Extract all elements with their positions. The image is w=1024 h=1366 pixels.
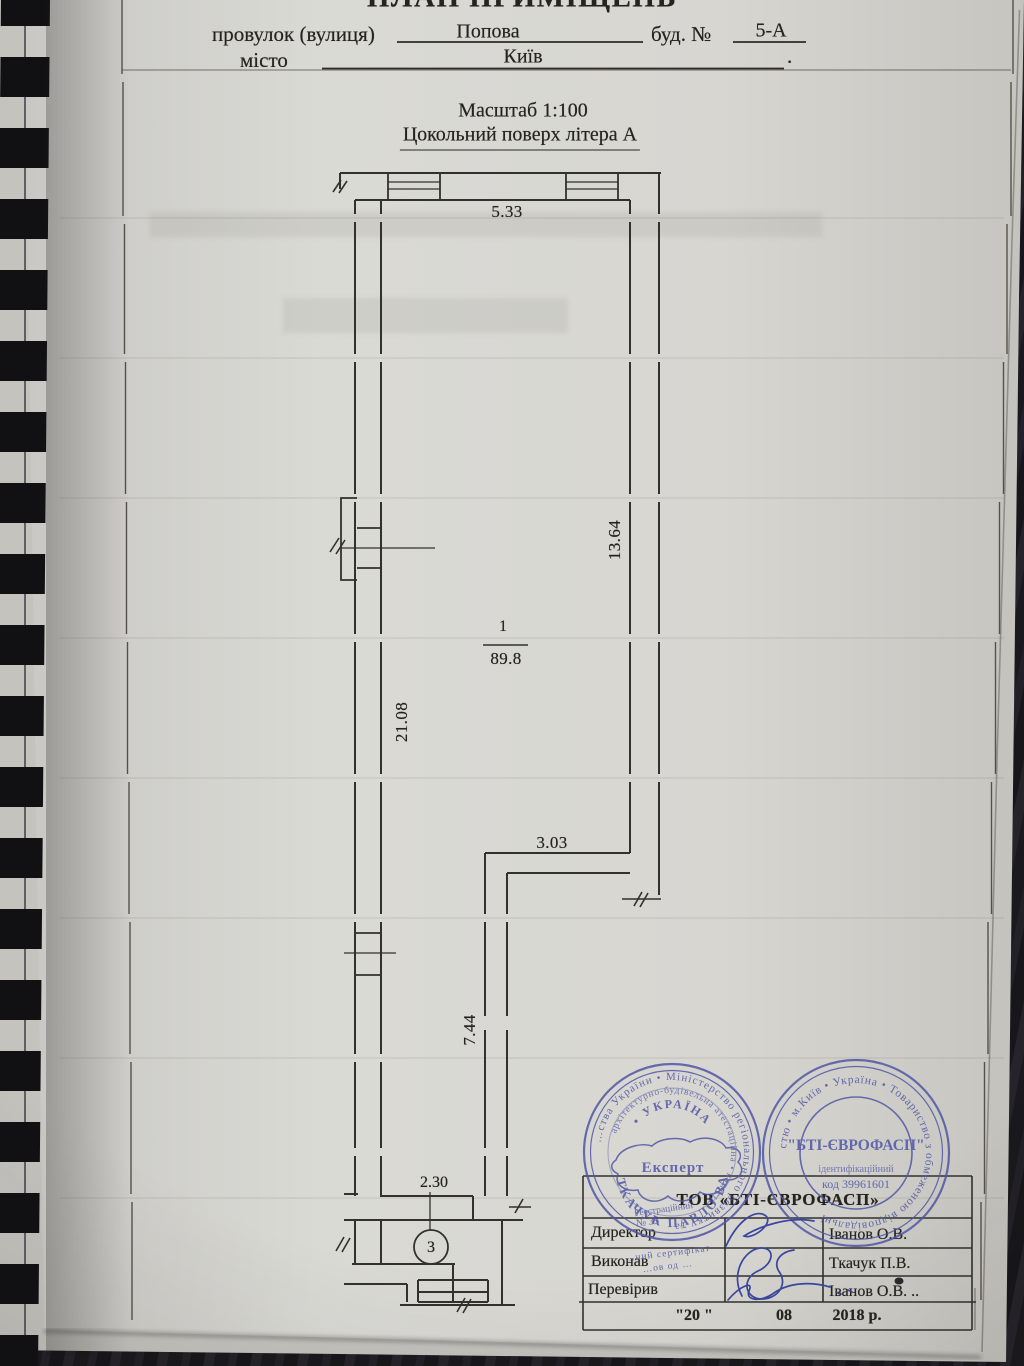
binding-shadow (46, 0, 130, 1356)
paper-sheet-and-drawing (0, 0, 1024, 1366)
photo-of-bound-floor-plan-document: ПЛАН ПРИМІЩЕНЬ провулок (вулиця) Попова … (0, 0, 1024, 1366)
main-sheet (24, 0, 1020, 1356)
